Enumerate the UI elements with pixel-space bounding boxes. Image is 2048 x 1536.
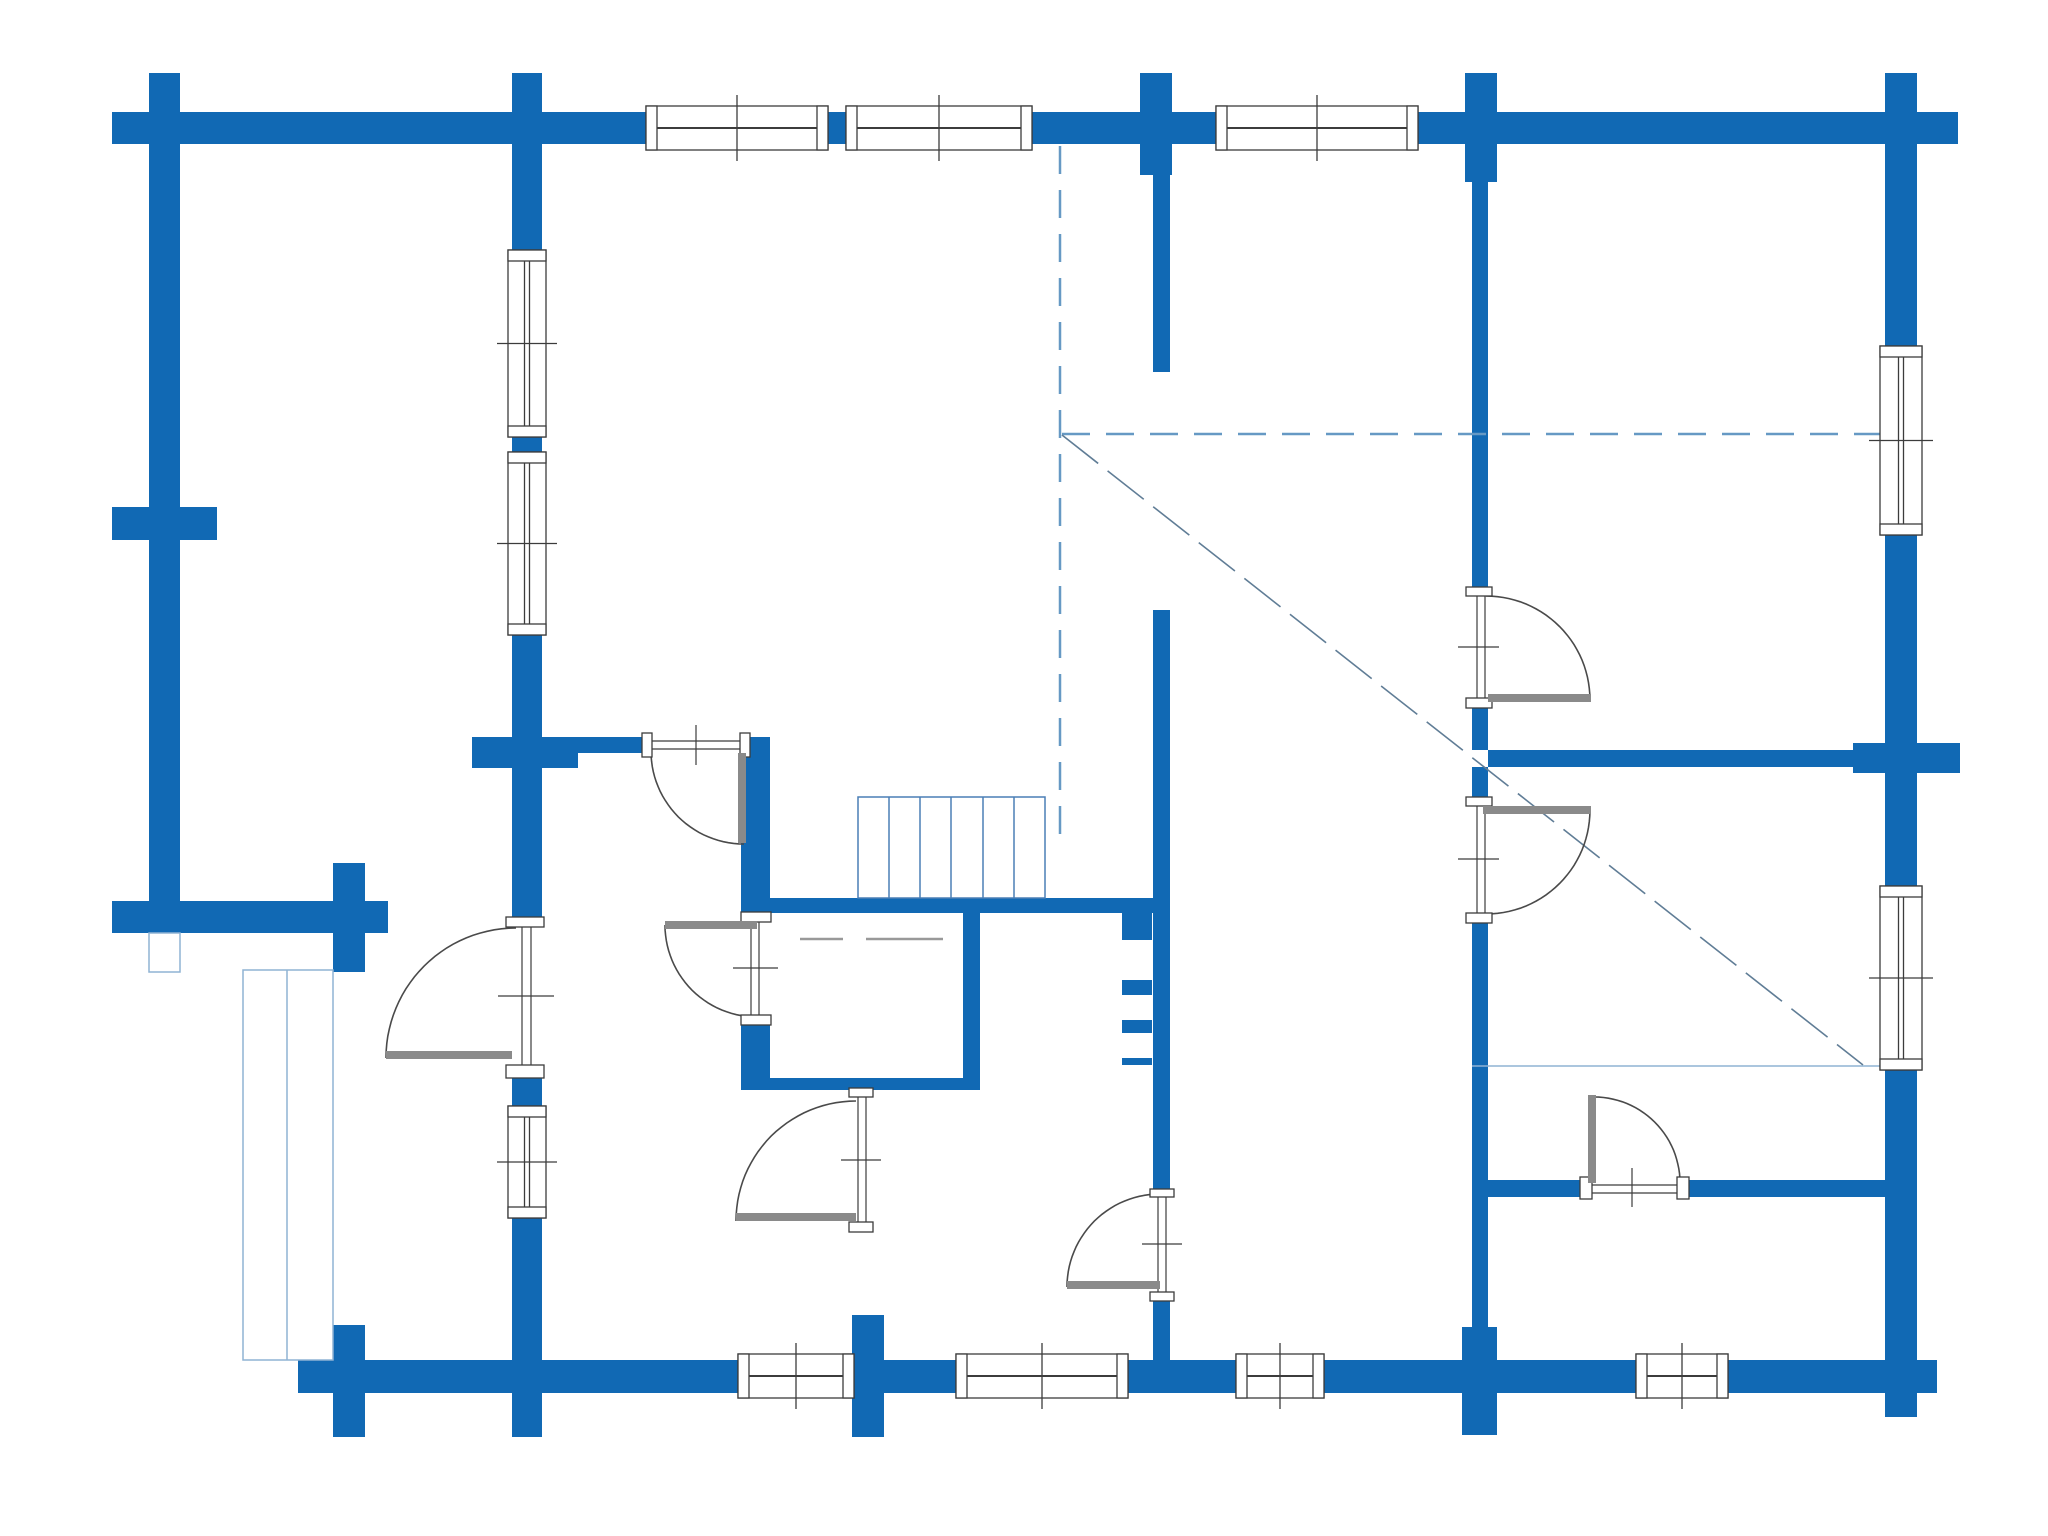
right-middle-door [1458,797,1591,923]
door-swing-arc [1067,1194,1160,1287]
loft-ladder [1122,913,1152,1065]
left-wall-top-stub [149,73,180,112]
center-wall-stub-wide [1140,144,1172,175]
bottom-cross-1462 [1462,1327,1497,1435]
top-window-3 [1216,95,1418,161]
right-wall-window-1 [1869,346,1933,535]
log-stub-top-1140 [1140,73,1172,112]
porch-cross-stub [333,863,365,972]
left-wall-cross-stub [112,507,217,540]
window-wall-pier [512,437,542,452]
door-swing-arc [1594,1097,1680,1183]
bottom-window-0 [738,1343,854,1409]
sauna-right-wall [963,913,980,1090]
right-inner-wall-seg-d [1472,913,1488,1327]
log-stub-top-512 [512,73,542,112]
right-inner-wall-seg-a [1472,182,1488,587]
right-room-wall-1180-a [1488,1180,1580,1197]
window-wall-seg-d [512,1216,542,1360]
right-room-wall-750 [1488,750,1885,767]
floorplan-page [0,0,2048,1536]
hall-left-door [642,725,750,844]
hall-wall-737-half [578,737,642,753]
center-wall-seg-b [1153,610,1170,1189]
wc-door [736,1088,881,1232]
reference-lines-layer [800,146,1884,1066]
center-wall-seg-a [1153,175,1170,372]
door-swing-arc [736,1101,856,1221]
entry-door [386,917,554,1078]
left-wall-window-1 [497,250,557,437]
bottom-cross-333 [333,1325,365,1437]
bottom-window-2 [1236,1343,1324,1409]
right-wall-seg-b [1885,533,1917,743]
window-wall-seg-b [512,633,542,917]
right-inner-wall-stub-wide [1465,144,1497,182]
right-room-door [1580,1095,1689,1207]
sauna-door [665,912,778,1025]
left-wall-window-2 [497,452,557,635]
door-swing-arc [1486,596,1590,700]
right-wall-seg-c [1885,773,1917,888]
walls-layer [112,73,1960,1437]
staircase [858,797,1045,898]
hall-bottom-door [1067,1189,1182,1301]
bottom-wall-seg-c [1128,1360,1236,1393]
right-wall-seg-a [1885,144,1917,348]
right-inner-wall-seg-b [1472,708,1488,750]
bottom-window-1 [956,1343,1128,1409]
bottom-cross-512 [512,1393,542,1437]
right-wall-top-stub [1885,73,1917,112]
door-swing-arc [651,751,744,844]
stairs-bottom-wall [770,898,1170,913]
bottom-window-3 [1636,1343,1728,1409]
center-wall-seg-c [1153,1300,1170,1360]
left-wall-window-3 [497,1106,557,1218]
bottom-cross-852 [852,1315,884,1437]
door-swing-arc [1486,810,1590,914]
top-window-2 [846,95,1032,161]
window-wall-seg-c [512,1078,542,1108]
door-swing-arc [386,928,516,1058]
right-inner-wall-seg-c [1472,767,1488,797]
top-exterior-wall [112,112,1958,144]
bottom-wall-seg-e [1728,1360,1937,1393]
window-wall-seg-a [512,144,542,250]
right-wall-window-2 [1869,886,1933,1070]
porch-area [149,933,333,1360]
top-window-1 [646,95,828,161]
right-room-wall-1180-b [1688,1180,1885,1197]
right-upper-door [1458,587,1591,708]
hall-wall-737-full [472,737,578,768]
log-stub-top-1465 [1465,73,1497,112]
door-swing-arc [665,925,757,1017]
floorplan-drawing [0,0,2048,1536]
